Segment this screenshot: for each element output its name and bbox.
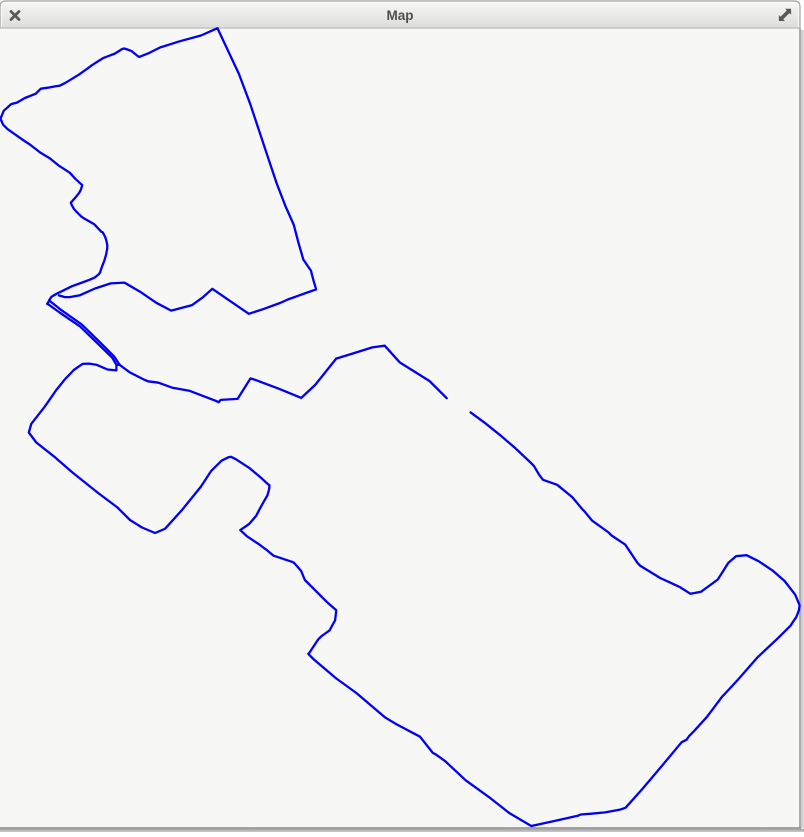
svg-text:Map: Map <box>387 8 414 23</box>
